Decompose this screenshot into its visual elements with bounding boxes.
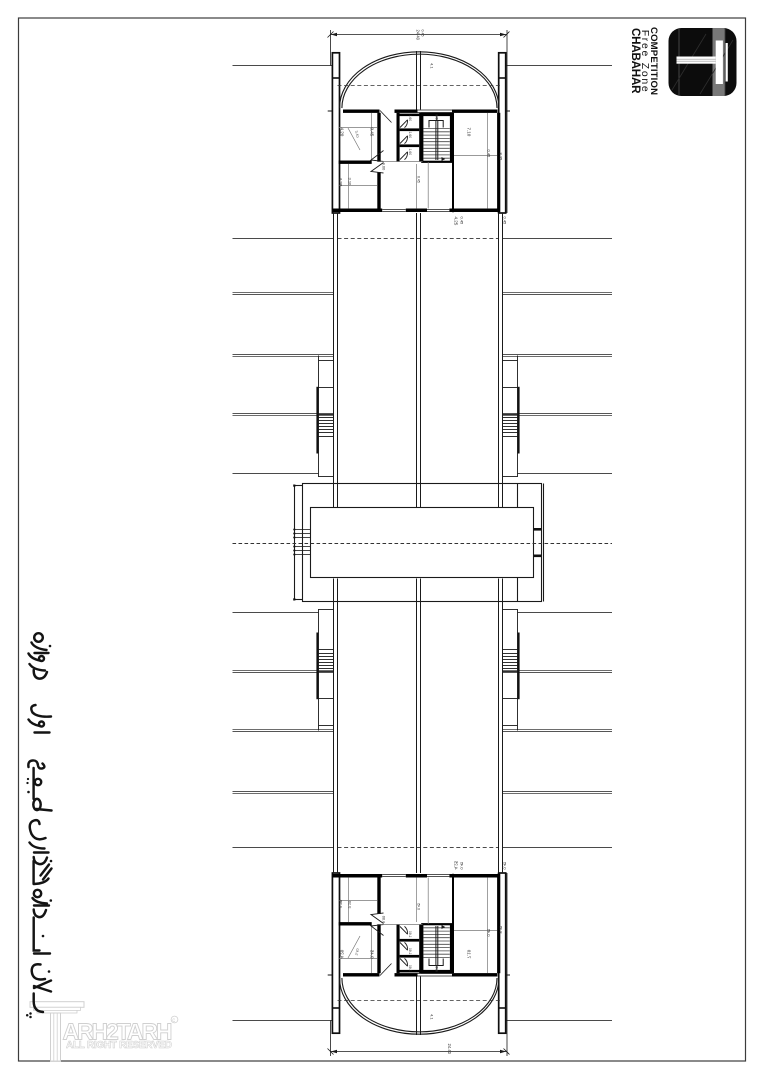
svg-text:0.45: 0.45: [421, 30, 425, 37]
svg-text:ALL RIGHT RESERVED: ALL RIGHT RESERVED: [66, 1040, 172, 1051]
svg-text:4.1: 4.1: [430, 63, 435, 69]
svg-text:24.40: 24.40: [447, 1044, 452, 1055]
svg-text:24.40: 24.40: [416, 30, 421, 41]
svg-text:4.1: 4.1: [430, 1014, 435, 1020]
svg-text:COMPETITION: COMPETITION: [648, 27, 659, 95]
svg-text:c: c: [172, 1018, 175, 1024]
